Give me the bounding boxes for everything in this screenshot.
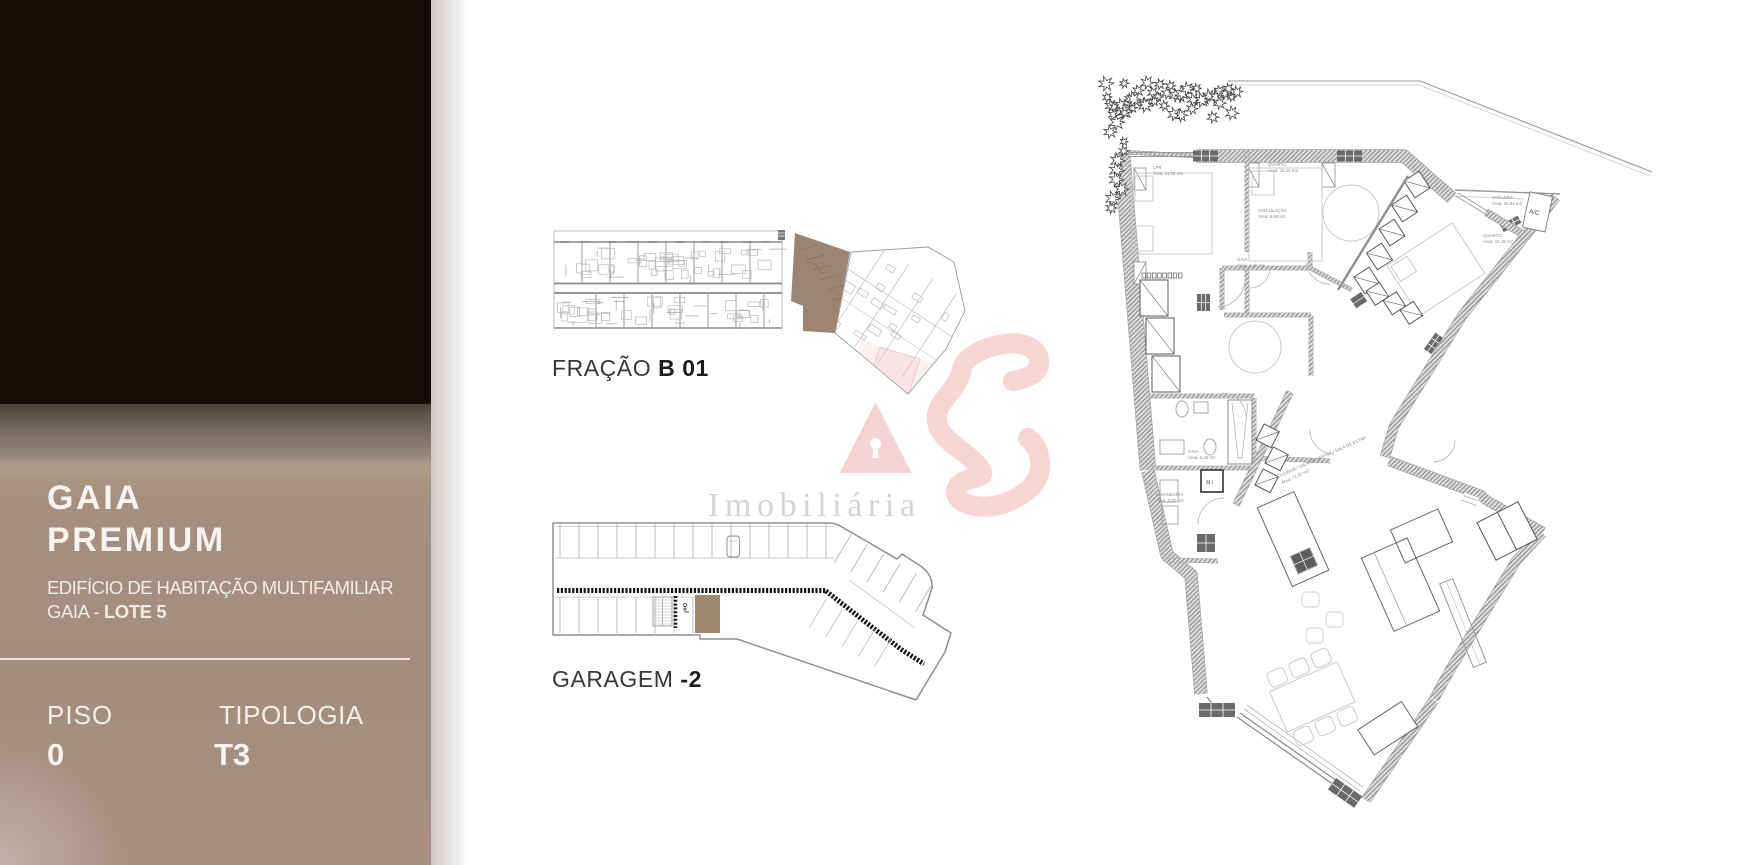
svg-text:Área: 3,92 m2: Área: 3,92 m2 (1156, 498, 1184, 503)
svg-text:Área: 10,16 m2: Área: 10,16 m2 (1268, 168, 1299, 173)
svg-text:CIRCULAÇÃO: CIRCULAÇÃO (1258, 208, 1287, 213)
svg-text:GAIA: GAIA (1188, 449, 1199, 454)
svg-text:LAVANDARIA: LAVANDARIA (1156, 492, 1183, 497)
svg-text:Área: 11,02 m2: Área: 11,02 m2 (1153, 171, 1183, 176)
svg-text:Área: 10,19 m2: Área: 10,19 m2 (1483, 239, 1514, 244)
svg-text:Área: 4,25 m2: Área: 4,25 m2 (1188, 455, 1216, 460)
svg-text:Área: 4,46 m2: Área: 4,46 m2 (1237, 263, 1265, 268)
svg-text:Área: 21,61 m2: Área: 21,61 m2 (1492, 201, 1523, 206)
svg-text:M.I: M.I (1206, 480, 1213, 486)
svg-text:QUARTO: QUARTO (1483, 233, 1502, 238)
svg-text:VARANDA: VARANDA (1492, 195, 1513, 200)
svg-text:QUARTO: QUARTO (1268, 162, 1287, 167)
svg-text:Área: 6,68 m2: Área: 6,68 m2 (1258, 214, 1286, 219)
svg-text:LPR: LPR (1153, 165, 1162, 170)
svg-text:GAIA: GAIA (1237, 257, 1248, 262)
